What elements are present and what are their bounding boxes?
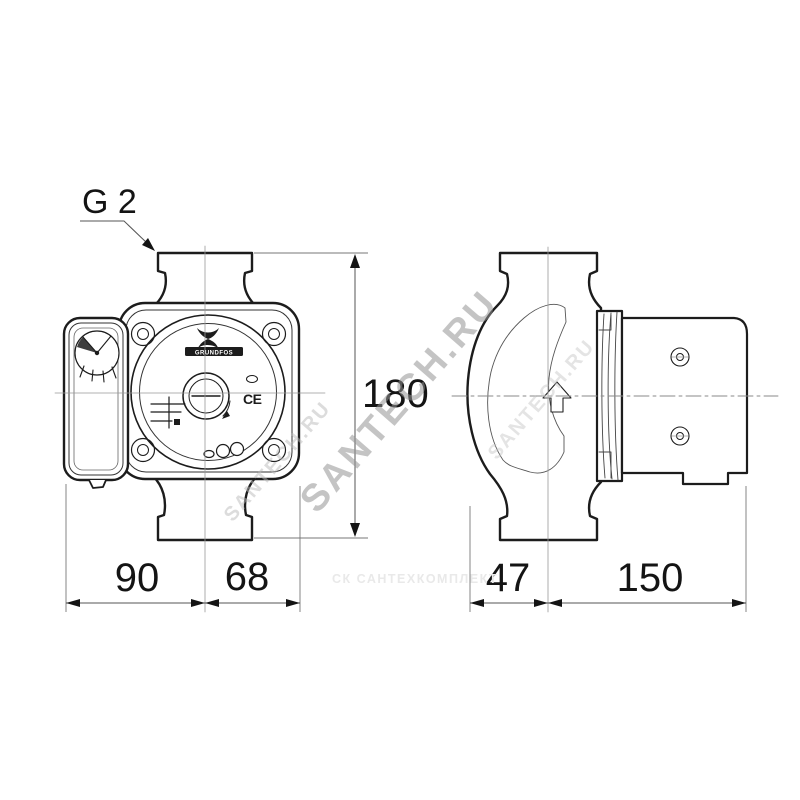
dim-width-left-label: 90 bbox=[115, 556, 160, 600]
leader-line bbox=[80, 221, 148, 244]
pump-dimensional-drawing: GRUNDFOS CE bbox=[0, 0, 800, 800]
terminal-box bbox=[64, 318, 128, 488]
selector-knob bbox=[183, 373, 230, 419]
dim-depth-rear-label: 150 bbox=[617, 556, 684, 600]
drawing-canvas: GRUNDFOS CE bbox=[0, 0, 800, 800]
motor-housing bbox=[622, 318, 747, 484]
front-view: GRUNDFOS CE bbox=[55, 246, 325, 612]
dim-height-label: 180 bbox=[362, 372, 429, 416]
dim-width-right-label: 68 bbox=[225, 555, 270, 599]
thread-size-label: G 2 bbox=[82, 183, 137, 221]
dim-depth-front-label: 47 bbox=[486, 556, 531, 600]
brand-label: GRUNDFOS bbox=[195, 351, 233, 357]
